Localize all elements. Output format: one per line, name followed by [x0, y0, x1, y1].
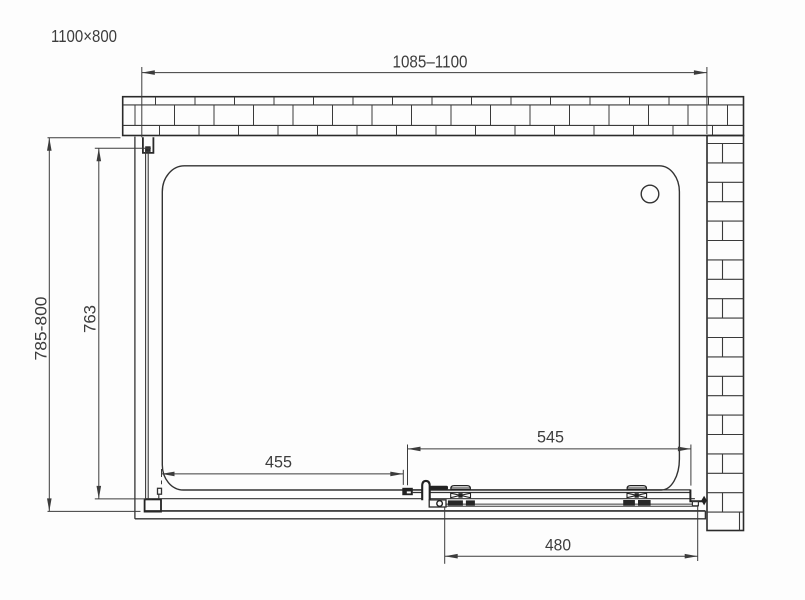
svg-text:1085–1100: 1085–1100 [393, 52, 468, 72]
svg-text:1100×800: 1100×800 [51, 26, 117, 46]
svg-text:785-800: 785-800 [32, 297, 51, 361]
svg-text:480: 480 [545, 535, 571, 554]
svg-text:545: 545 [537, 428, 564, 447]
svg-text:763: 763 [81, 305, 100, 333]
svg-text:455: 455 [265, 453, 292, 472]
